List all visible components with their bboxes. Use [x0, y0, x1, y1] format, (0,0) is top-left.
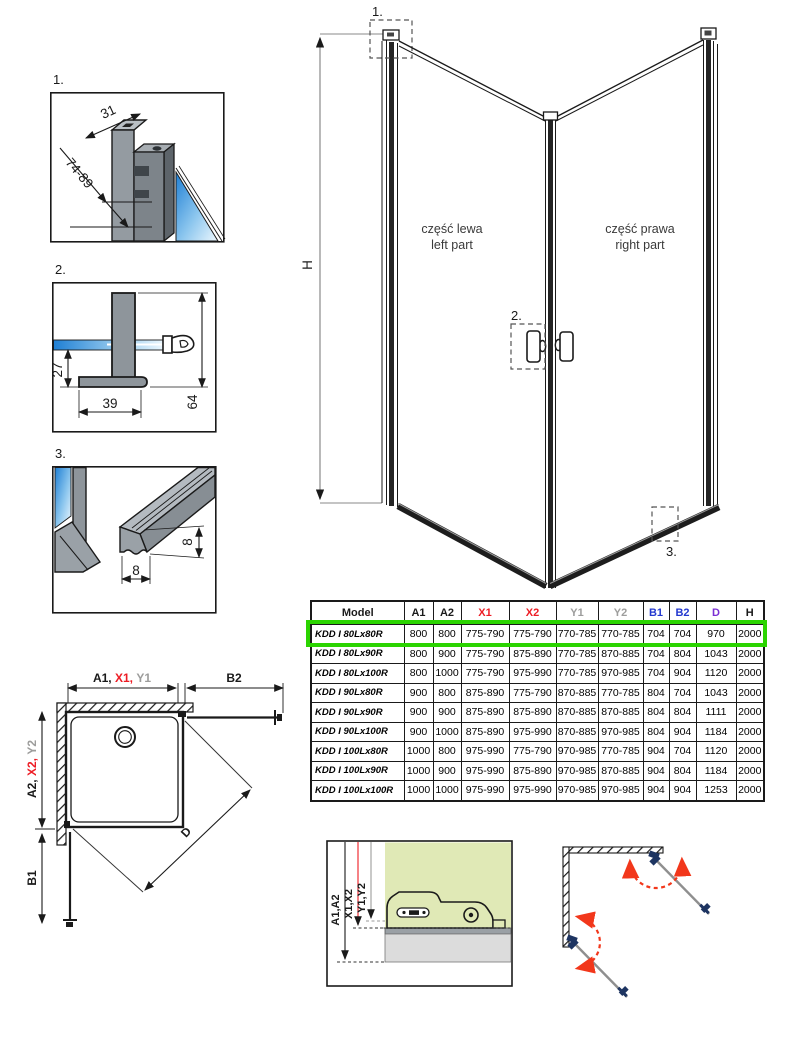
value-cell: 804: [669, 761, 696, 781]
table-row: KDD I 90Lx80R900800875-890775-790870-885…: [311, 683, 764, 703]
value-cell: 804: [643, 722, 669, 742]
table-row: KDD I 100Lx100R10001000975-990975-990970…: [311, 781, 764, 801]
technical-drawing-page: 1. 31 74-89 2.: [0, 0, 791, 1045]
value-cell: 775-790: [509, 742, 556, 762]
value-cell: 704: [669, 683, 696, 703]
model-cell: KDD I 100Lx90R: [311, 761, 404, 781]
value-cell: 804: [669, 703, 696, 723]
door-swing-view: [545, 835, 791, 1010]
value-cell: 2000: [736, 722, 764, 742]
value-cell: 775-790: [461, 625, 509, 645]
value-cell: 870-885: [556, 722, 598, 742]
value-cell: 2000: [736, 625, 764, 645]
value-cell: 975-990: [509, 722, 556, 742]
dim-y1y2: Y1,Y2: [356, 883, 368, 913]
value-cell: 704: [643, 664, 669, 684]
dim-39: 39: [102, 396, 117, 411]
value-cell: 970: [696, 625, 736, 645]
right-door-top-edge: [556, 40, 703, 117]
value-cell: 1184: [696, 722, 736, 742]
dim-H: H: [300, 260, 315, 270]
value-cell: 900: [404, 683, 433, 703]
value-cell: 1000: [433, 722, 461, 742]
table-row: KDD I 80Lx90R800900775-790875-890770-785…: [311, 644, 764, 664]
value-cell: 970-985: [556, 761, 598, 781]
value-cell: 1184: [696, 761, 736, 781]
value-cell: 904: [643, 781, 669, 801]
value-cell: 2000: [736, 781, 764, 801]
value-cell: 970-985: [598, 781, 643, 801]
value-cell: 770-785: [598, 742, 643, 762]
value-cell: 800: [433, 742, 461, 762]
value-cell: 1000: [404, 761, 433, 781]
value-cell: 1000: [433, 664, 461, 684]
value-cell: 975-990: [461, 742, 509, 762]
column-header: Y1: [556, 601, 598, 625]
model-cell: KDD I 90Lx90R: [311, 703, 404, 723]
table-row: KDD I 80Lx80R800800775-790775-790770-785…: [311, 625, 764, 645]
value-cell: 875-890: [461, 683, 509, 703]
value-cell: 875-890: [461, 703, 509, 723]
door-handle: [163, 336, 194, 353]
wall-top: [57, 703, 193, 712]
value-cell: 800: [404, 644, 433, 664]
value-cell: 975-990: [461, 761, 509, 781]
value-cell: 875-890: [509, 644, 556, 664]
column-header: H: [736, 601, 764, 625]
marker-2-label: 2.: [511, 308, 522, 323]
value-cell: 2000: [736, 761, 764, 781]
value-cell: 775-790: [461, 644, 509, 664]
value-cell: 770-785: [598, 683, 643, 703]
value-cell: 804: [643, 683, 669, 703]
model-cell: KDD I 100Lx100R: [311, 781, 404, 801]
plan-left-dimensions: A2, X2, Y2 B1: [25, 712, 55, 923]
value-cell: 870-885: [598, 644, 643, 664]
swing-wall-left: [563, 847, 569, 947]
right-part-label-pl: część prawa: [605, 222, 675, 236]
left-door-swing: [73, 829, 143, 892]
value-cell: 904: [669, 781, 696, 801]
value-cell: 775-790: [461, 664, 509, 684]
value-cell: 775-790: [509, 625, 556, 645]
value-cell: 1000: [404, 781, 433, 801]
value-cell: 770-785: [556, 664, 598, 684]
detail-1-wall-profile: 1. 31 74-89: [50, 70, 225, 242]
value-cell: 975-990: [461, 781, 509, 801]
size-table: ModelA1A2X1X2Y1Y2B1B2DHKDD I 80Lx80R8008…: [310, 600, 765, 802]
dim-8-horizontal: 8: [132, 563, 140, 578]
left-door-handle: [527, 331, 540, 362]
value-cell: 1043: [696, 644, 736, 664]
value-cell: 970-985: [598, 722, 643, 742]
left-door-top-edge: [399, 41, 545, 117]
value-cell: 800: [433, 683, 461, 703]
value-cell: 2000: [736, 664, 764, 684]
model-cell: KDD I 80Lx90R: [311, 644, 404, 664]
column-header: X1: [461, 601, 509, 625]
plan-view: A1, X1, Y1 B2 D A2, X2, Y2 B1: [25, 655, 300, 955]
value-cell: 875-890: [461, 722, 509, 742]
main-enclosure-view: H 1.: [300, 0, 791, 598]
value-cell: 1120: [696, 742, 736, 762]
left-door-top-edge-inner: [399, 46, 545, 121]
detail-2-handle-profile: 2. 27 39 64: [52, 260, 217, 432]
dim-a2x2y2: A2, X2, Y2: [25, 740, 39, 798]
table-row: KDD I 100Lx90R1000900975-990875-890970-9…: [311, 761, 764, 781]
value-cell: 704: [669, 742, 696, 762]
value-cell: 704: [669, 625, 696, 645]
model-cell: KDD I 100Lx80R: [311, 742, 404, 762]
model-cell: KDD I 90Lx80R: [311, 683, 404, 703]
value-cell: 900: [433, 761, 461, 781]
value-cell: 800: [404, 625, 433, 645]
left-part-label-pl: część lewa: [421, 222, 482, 236]
value-cell: 900: [433, 703, 461, 723]
height-dimension: H: [300, 34, 384, 503]
table-row: KDD I 90Lx90R900900875-890875-890870-885…: [311, 703, 764, 723]
column-header: A2: [433, 601, 461, 625]
value-cell: 1111: [696, 703, 736, 723]
floor-base: [385, 934, 511, 962]
value-cell: 775-790: [509, 683, 556, 703]
swing-wall-top: [563, 847, 663, 853]
value-cell: 2000: [736, 683, 764, 703]
value-cell: 970-985: [556, 742, 598, 762]
detail-3-label: 3.: [55, 446, 66, 461]
column-header: Y2: [598, 601, 643, 625]
value-cell: 900: [433, 644, 461, 664]
dim-b1: B1: [25, 870, 39, 886]
value-cell: 975-990: [509, 781, 556, 801]
dim-x1x2: X1,X2: [343, 889, 355, 919]
value-cell: 904: [669, 722, 696, 742]
value-cell: 770-785: [556, 644, 598, 664]
value-cell: 870-885: [556, 703, 598, 723]
column-header: B1: [643, 601, 669, 625]
dim-b2: B2: [226, 671, 242, 685]
value-cell: 1120: [696, 664, 736, 684]
shower-tray: [66, 712, 183, 827]
value-cell: 870-885: [556, 683, 598, 703]
detail-1-label: 1.: [53, 72, 64, 87]
swing-door-left: [566, 917, 628, 997]
value-cell: 870-885: [598, 761, 643, 781]
swing-door-right: [630, 850, 711, 914]
table-row: KDD I 80Lx100R8001000775-790975-990770-7…: [311, 664, 764, 684]
value-cell: 2000: [736, 644, 764, 664]
value-cell: 900: [404, 703, 433, 723]
value-cell: 800: [404, 664, 433, 684]
value-cell: 770-785: [556, 625, 598, 645]
value-cell: 1253: [696, 781, 736, 801]
value-cell: 1043: [696, 683, 736, 703]
column-header: D: [696, 601, 736, 625]
value-cell: 804: [669, 644, 696, 664]
value-cell: 770-785: [598, 625, 643, 645]
value-cell: 804: [643, 703, 669, 723]
value-cell: 875-890: [509, 761, 556, 781]
marker-3-label: 3.: [666, 544, 677, 559]
value-cell: 1000: [404, 742, 433, 762]
dim-27: 27: [50, 362, 65, 377]
dim-64: 64: [185, 394, 200, 410]
table-row: KDD I 90Lx100R9001000875-890975-990870-8…: [311, 722, 764, 742]
floor-strip: [385, 928, 511, 934]
marker-1-label: 1.: [372, 4, 383, 19]
model-cell: KDD I 80Lx100R: [311, 664, 404, 684]
right-part-label-en: right part: [615, 238, 665, 252]
value-cell: 904: [669, 664, 696, 684]
value-cell: 2000: [736, 742, 764, 762]
value-cell: 904: [643, 761, 669, 781]
right-wall-profile: [701, 28, 718, 509]
column-header: A1: [404, 601, 433, 625]
value-cell: 704: [643, 625, 669, 645]
column-header: X2: [509, 601, 556, 625]
dim-a1a2: A1,A2: [330, 894, 342, 925]
column-header: Model: [311, 601, 404, 625]
left-part-label-en: left part: [431, 238, 473, 252]
value-cell: 970-985: [598, 664, 643, 684]
value-cell: 870-885: [598, 703, 643, 723]
swing-arc-right: [630, 861, 682, 888]
table-row: KDD I 100Lx80R1000800975-990775-790970-9…: [311, 742, 764, 762]
right-door-top-edge-inner: [556, 45, 703, 121]
value-cell: 875-890: [509, 703, 556, 723]
right-door-swing: [185, 721, 252, 788]
model-cell: KDD I 80Lx80R: [311, 625, 404, 645]
install-detail-view: A1,A2 X1,X2 Y1,Y2: [325, 838, 520, 998]
value-cell: 970-985: [556, 781, 598, 801]
value-cell: 800: [433, 625, 461, 645]
dim-8-vertical: 8: [180, 538, 195, 546]
detail-2-label: 2.: [55, 262, 66, 277]
left-wall-profile: [382, 30, 399, 507]
value-cell: 2000: [736, 703, 764, 723]
value-cell: 1000: [433, 781, 461, 801]
column-header: B2: [669, 601, 696, 625]
detail-3-threshold-profile: 3. 8 8: [52, 444, 217, 613]
value-cell: 975-990: [509, 664, 556, 684]
value-cell: 904: [643, 742, 669, 762]
right-door-handle: [560, 332, 573, 361]
dim-a1x1y1: A1, X1, Y1: [93, 671, 151, 685]
value-cell: 704: [643, 644, 669, 664]
value-cell: 900: [404, 722, 433, 742]
model-cell: KDD I 90Lx100R: [311, 722, 404, 742]
